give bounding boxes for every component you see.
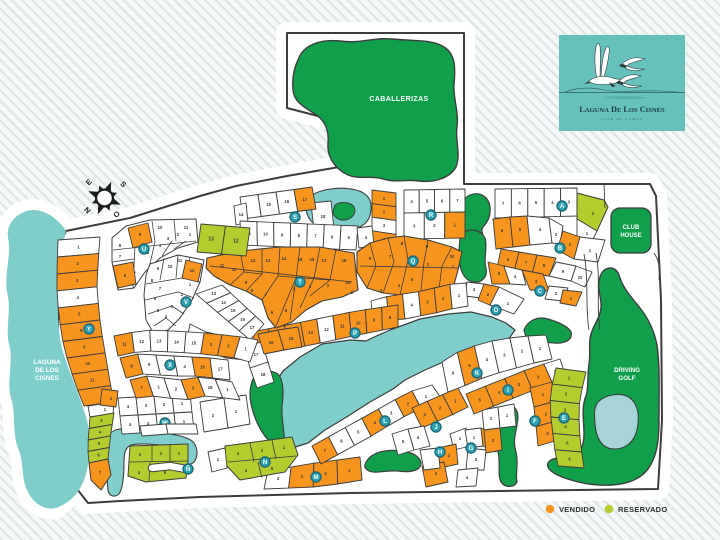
svg-text:T: T	[298, 280, 302, 286]
svg-text:C: C	[538, 289, 543, 295]
svg-text:18: 18	[321, 214, 326, 219]
svg-text:17: 17	[303, 197, 308, 202]
svg-text:CISNES: CISNES	[35, 375, 60, 382]
svg-text:16: 16	[269, 340, 274, 345]
svg-text:H: H	[438, 450, 442, 456]
svg-text:10: 10	[450, 254, 455, 259]
svg-text:A: A	[560, 204, 565, 210]
svg-text:11: 11	[340, 324, 345, 329]
svg-text:13: 13	[208, 237, 214, 243]
svg-text:Y: Y	[87, 327, 91, 333]
svg-text:18: 18	[208, 385, 213, 390]
svg-text:GOLF: GOLF	[618, 375, 635, 382]
svg-text:LAGUNA DE LOS CISNES: LAGUNA DE LOS CISNES	[579, 105, 665, 114]
svg-text:12: 12	[190, 268, 195, 273]
svg-text:11: 11	[90, 377, 95, 382]
svg-text:17: 17	[218, 367, 223, 372]
svg-text:18: 18	[342, 258, 347, 263]
svg-text:17: 17	[254, 352, 259, 357]
svg-text:V: V	[184, 300, 188, 306]
svg-text:11: 11	[122, 342, 127, 347]
svg-text:X: X	[168, 363, 172, 369]
svg-text:14: 14	[221, 300, 226, 305]
svg-text:16: 16	[240, 317, 245, 322]
svg-text:15: 15	[231, 308, 236, 313]
svg-text:O: O	[494, 308, 499, 314]
svg-text:15: 15	[298, 257, 303, 262]
svg-text:11: 11	[178, 258, 183, 263]
svg-text:P: P	[353, 331, 357, 337]
svg-text:13: 13	[266, 258, 271, 263]
svg-text:LAGUNA: LAGUNA	[33, 359, 61, 366]
svg-text:DE LOS: DE LOS	[35, 367, 60, 374]
svg-text:CLUB: CLUB	[623, 225, 640, 231]
svg-text:18: 18	[261, 372, 266, 377]
svg-text:K: K	[475, 371, 480, 377]
svg-text:15: 15	[191, 340, 196, 345]
svg-text:14: 14	[174, 339, 179, 344]
svg-text:16: 16	[200, 365, 205, 370]
svg-text:10: 10	[578, 275, 583, 280]
svg-text:10: 10	[232, 267, 237, 272]
svg-text:10: 10	[158, 225, 163, 230]
svg-text:17: 17	[250, 325, 255, 330]
svg-text:16: 16	[310, 257, 315, 262]
svg-text:13: 13	[157, 339, 162, 344]
svg-text:16: 16	[284, 199, 289, 204]
svg-text:Ñ: Ñ	[186, 466, 190, 473]
svg-text:HOUSE: HOUSE	[620, 233, 641, 239]
svg-text:11: 11	[220, 263, 225, 268]
svg-text:CABALLERIZAS: CABALLERIZAS	[369, 96, 428, 103]
svg-text:19: 19	[346, 280, 351, 285]
svg-text:Q: Q	[411, 259, 416, 265]
svg-text:S: S	[293, 215, 297, 221]
svg-text:G: G	[469, 446, 474, 452]
svg-text:11: 11	[184, 225, 189, 230]
svg-text:14: 14	[282, 256, 287, 261]
svg-text:13: 13	[211, 291, 216, 296]
svg-text:12: 12	[139, 339, 144, 344]
svg-text:15: 15	[266, 202, 271, 207]
svg-text:J: J	[434, 425, 437, 431]
svg-text:DRIVING: DRIVING	[614, 367, 640, 374]
svg-text:N: N	[263, 460, 267, 466]
svg-text:U: U	[142, 247, 146, 253]
svg-text:12: 12	[324, 327, 329, 332]
svg-text:CLUB DE CAMPO: CLUB DE CAMPO	[601, 117, 643, 121]
svg-text:12: 12	[233, 239, 239, 245]
svg-text:13: 13	[308, 330, 313, 335]
svg-text:R: R	[429, 213, 434, 219]
svg-text:12: 12	[251, 258, 256, 263]
svg-text:10: 10	[168, 264, 173, 269]
svg-text:10: 10	[263, 232, 268, 237]
svg-text:F: F	[533, 419, 537, 425]
svg-text:L: L	[383, 419, 387, 425]
svg-text:10: 10	[86, 361, 91, 366]
svg-text:15: 15	[289, 336, 294, 341]
svg-text:B: B	[558, 246, 563, 252]
svg-text:RESERVADO: RESERVADO	[618, 505, 668, 514]
svg-text:17: 17	[322, 258, 327, 263]
svg-text:14: 14	[239, 212, 244, 217]
svg-text:10: 10	[356, 320, 361, 325]
svg-text:VENDIDO: VENDIDO	[559, 505, 595, 514]
svg-text:E: E	[562, 416, 566, 422]
svg-text:M: M	[314, 475, 319, 481]
